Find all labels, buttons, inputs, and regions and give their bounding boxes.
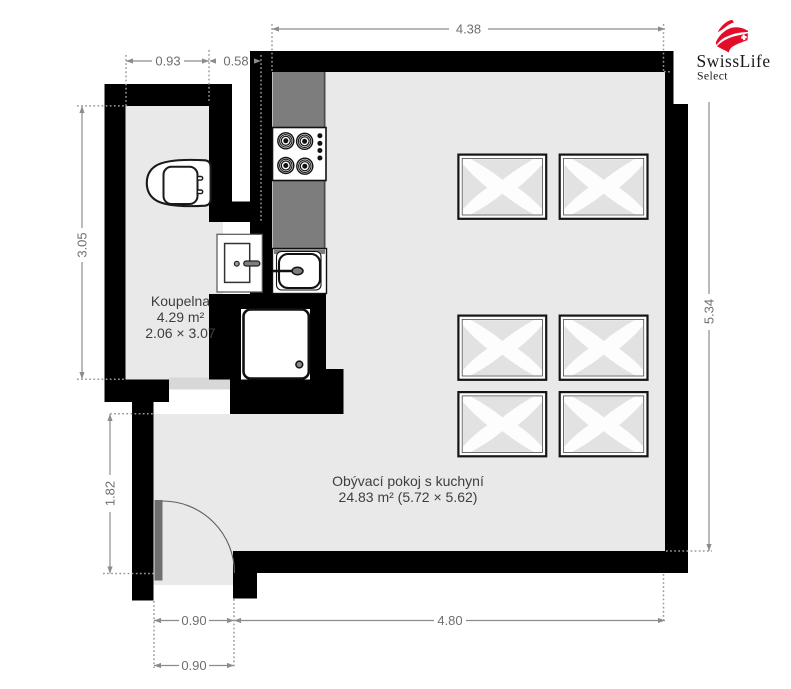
svg-text:Select: Select xyxy=(697,69,728,82)
svg-text:0.93: 0.93 xyxy=(155,54,180,69)
svg-text:4.38: 4.38 xyxy=(456,22,481,37)
svg-text:SwissLife: SwissLife xyxy=(697,51,771,71)
svg-text:0.90: 0.90 xyxy=(181,613,206,628)
svg-text:Koupelna: Koupelna xyxy=(151,293,210,309)
svg-text:0.90: 0.90 xyxy=(181,658,206,673)
svg-text:4.29 m²: 4.29 m² xyxy=(157,309,205,325)
svg-text:24.83 m² (5.72 × 5.62): 24.83 m² (5.72 × 5.62) xyxy=(339,489,478,505)
svg-text:0.58: 0.58 xyxy=(223,54,248,69)
svg-text:4.80: 4.80 xyxy=(437,613,462,628)
svg-text:2.06 × 3.07: 2.06 × 3.07 xyxy=(145,325,216,341)
svg-text:Obývací pokoj s kuchyní: Obývací pokoj s kuchyní xyxy=(332,473,484,489)
svg-text:1.82: 1.82 xyxy=(103,481,118,506)
svg-text:5.34: 5.34 xyxy=(702,299,717,324)
svg-text:3.05: 3.05 xyxy=(75,232,90,257)
